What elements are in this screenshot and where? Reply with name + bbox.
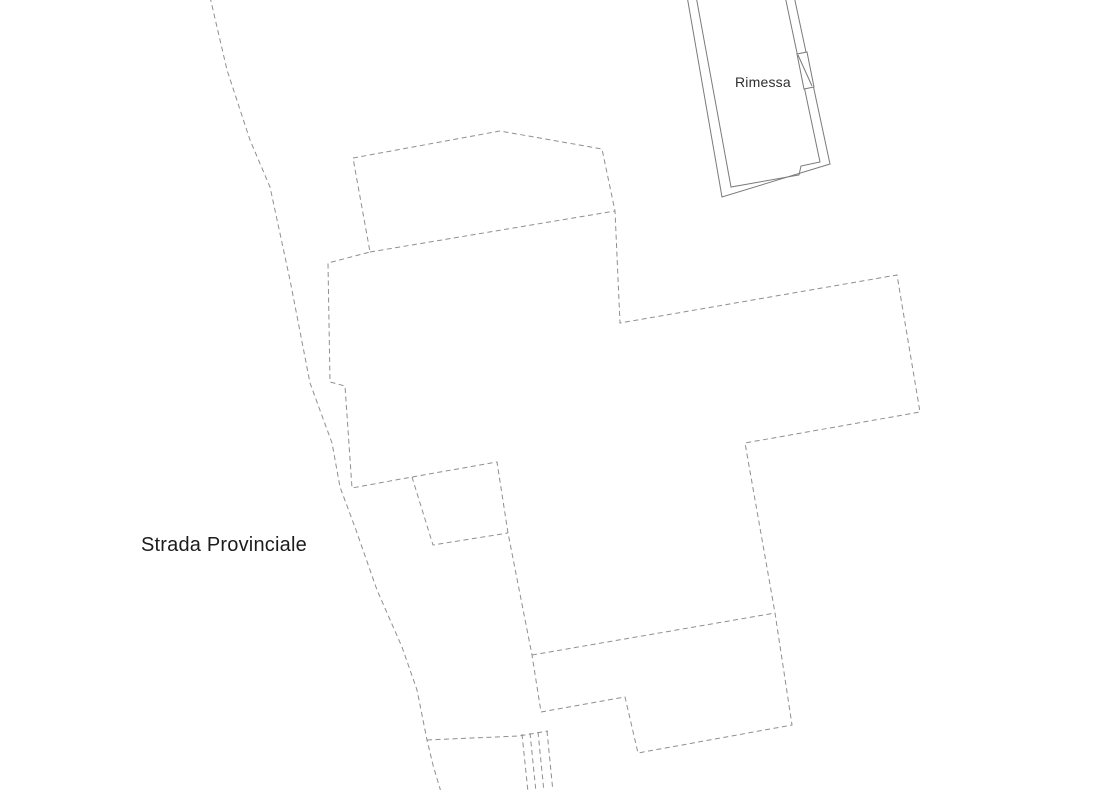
site-plan-canvas: Rimessa Strada Provinciale: [0, 0, 1114, 790]
interior-division-line-upper: [370, 211, 615, 252]
main-building-group: [328, 131, 920, 753]
annex-outline: [412, 477, 508, 545]
rimessa-building-group: [687, 0, 830, 197]
road-boundary-group: [210, 0, 441, 790]
road-label: Strada Provinciale: [141, 534, 307, 556]
site-plan-svg: Rimessa Strada Provinciale: [0, 0, 1114, 790]
steps-line-2: [530, 733, 536, 790]
steps-line-3: [538, 732, 544, 790]
road-boundary-line: [210, 0, 441, 790]
interior-division-line-lower: [532, 613, 775, 655]
steps-line-1: [522, 734, 528, 790]
steps-group: [427, 731, 553, 790]
rimessa-outer-wall: [687, 0, 830, 197]
rimessa-label: Rimessa: [735, 74, 791, 90]
rimessa-inner-wall: [696, 0, 820, 187]
main-building-outline: [328, 131, 920, 753]
steps-line-4: [547, 731, 553, 790]
